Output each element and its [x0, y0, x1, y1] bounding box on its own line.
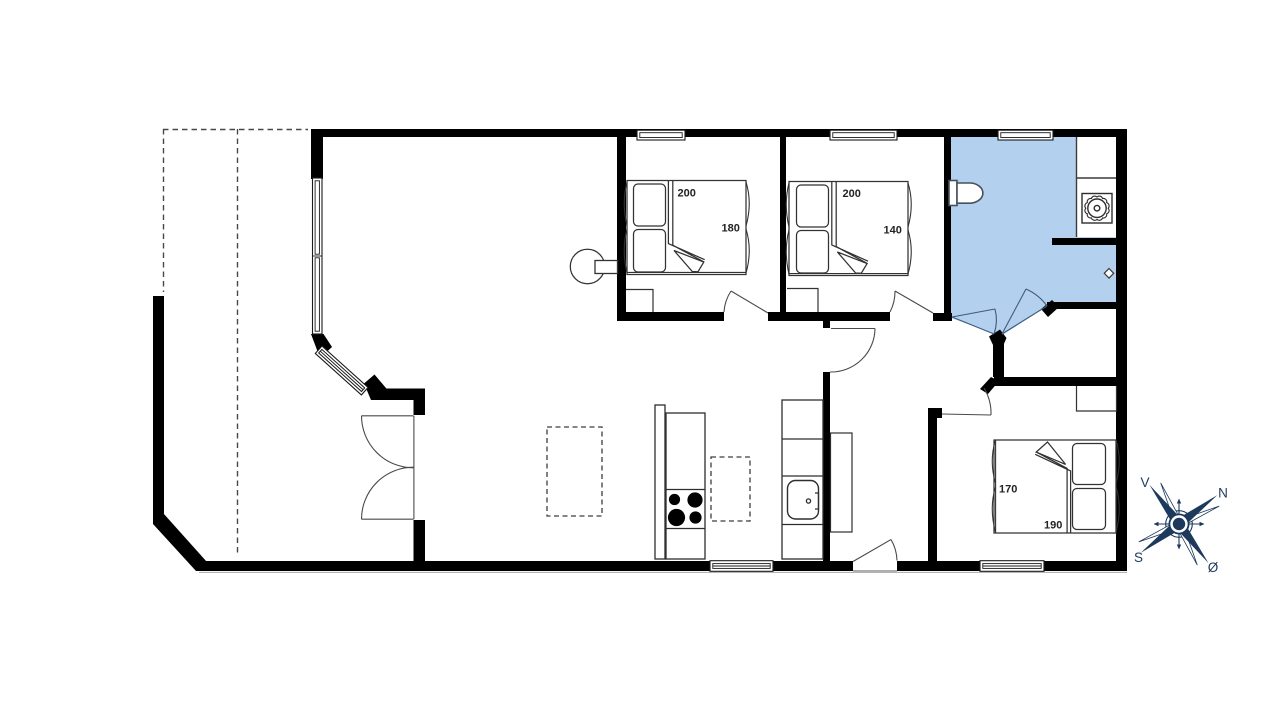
svg-text:200: 200 [678, 188, 696, 200]
svg-text:S: S [1134, 550, 1143, 565]
svg-text:V: V [1140, 475, 1149, 490]
svg-text:170: 170 [999, 484, 1017, 496]
svg-text:Ø: Ø [1208, 560, 1219, 575]
svg-text:140: 140 [884, 225, 902, 237]
svg-text:180: 180 [722, 223, 740, 235]
svg-text:200: 200 [843, 188, 861, 200]
svg-text:N: N [1218, 486, 1228, 501]
svg-text:190: 190 [1044, 520, 1062, 532]
